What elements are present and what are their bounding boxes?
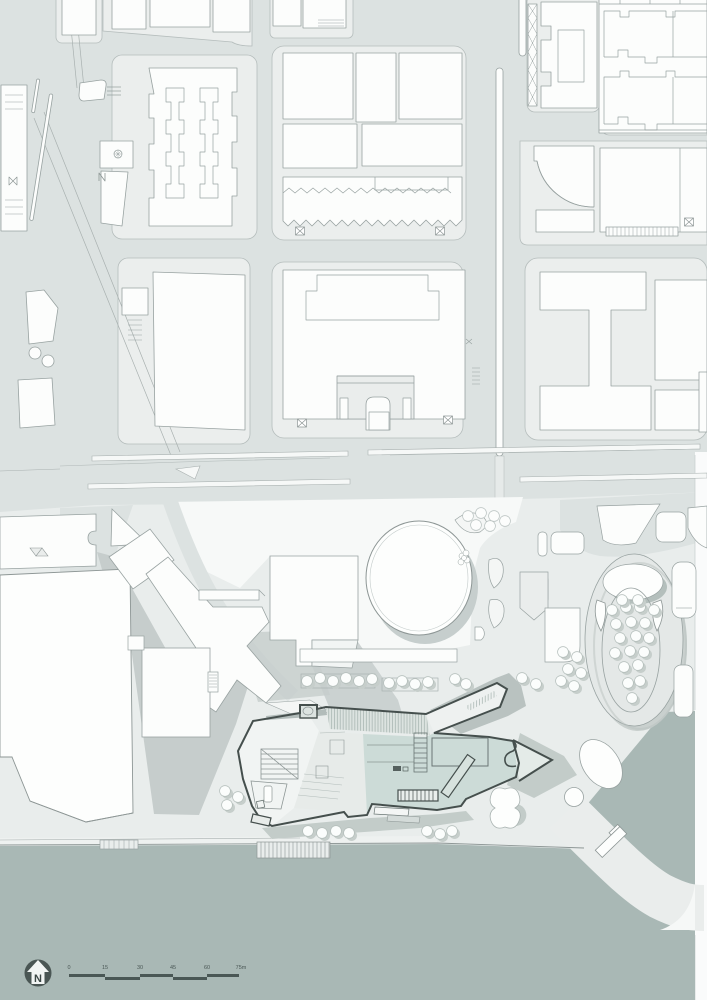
svg-text:60: 60 — [204, 965, 210, 971]
svg-text:0: 0 — [67, 965, 70, 971]
svg-text:N: N — [34, 973, 42, 985]
svg-text:75m: 75m — [236, 965, 247, 971]
svg-text:30: 30 — [137, 965, 143, 971]
svg-text:15: 15 — [102, 965, 108, 971]
svg-text:45: 45 — [170, 965, 176, 971]
